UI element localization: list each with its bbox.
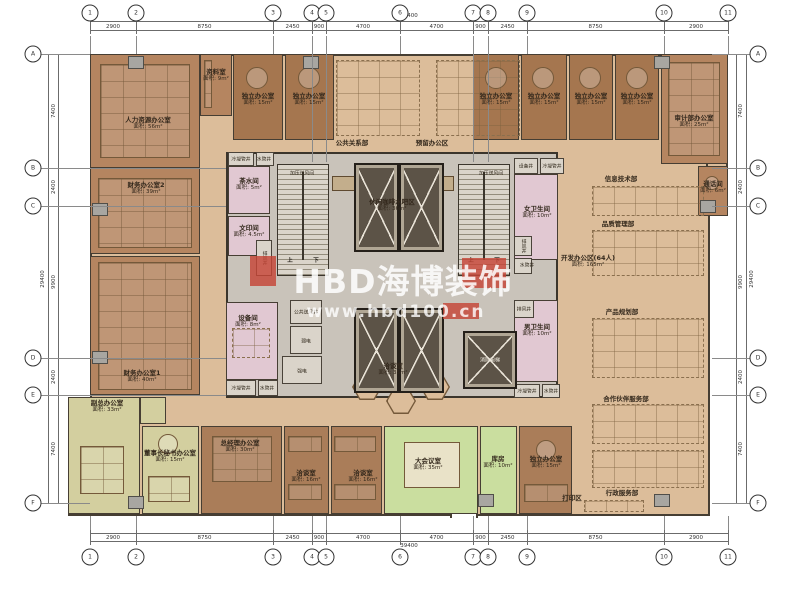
column-marker	[128, 496, 144, 509]
dim-segment-top: 4700	[356, 24, 370, 30]
grid-leader-bottom	[326, 516, 327, 530]
furniture-round	[246, 67, 268, 89]
area-label: 洽谈室面积: 35m²	[378, 362, 407, 378]
grid-bubble-top: 9	[519, 5, 536, 22]
dim-segment-top: 2450	[501, 24, 515, 30]
column-marker	[128, 56, 144, 69]
grid-bubble-bottom: 1	[82, 549, 99, 566]
grid-bubble-left: D	[25, 350, 42, 367]
stair-up-label: 上	[468, 256, 474, 264]
grid-bubble-top: 3	[265, 5, 282, 22]
furniture-solid	[212, 436, 272, 482]
dim-segment-bottom: 4700	[356, 535, 370, 541]
furniture-solid	[288, 436, 322, 452]
grid-bubble-bottom: 5	[318, 549, 335, 566]
grid-leader-top	[90, 36, 91, 54]
grid-leader-bottom	[400, 516, 401, 530]
dim-tick	[326, 529, 327, 545]
grid-bubble-right: E	[750, 387, 767, 404]
dim-segment-right: 7400	[738, 104, 744, 118]
dim-segment-left: 7400	[51, 104, 57, 118]
furniture-dashed	[336, 60, 420, 136]
area-label: 产品规划部	[606, 308, 639, 316]
dim-segment-bottom: 8750	[198, 535, 212, 541]
grid-leader-right	[712, 54, 750, 55]
grid-bubble-bottom: 10	[656, 549, 673, 566]
grid-bubble-top: 5	[318, 5, 335, 22]
stair-down-label: 下	[494, 256, 500, 264]
grid-leader-bottom	[312, 516, 313, 530]
dim-tick	[527, 529, 528, 545]
grid-leader-left	[41, 395, 226, 396]
grid-leader-left	[41, 168, 226, 169]
grid-leader-left	[41, 206, 226, 207]
shaft-label: 排风井	[517, 306, 531, 313]
furniture-round	[158, 434, 178, 454]
furniture-table	[404, 442, 460, 488]
grid-leader-right	[712, 358, 750, 359]
dim-segment-left: 9900	[51, 275, 57, 289]
dim-tick	[488, 529, 489, 545]
furniture-solid	[668, 62, 720, 156]
dim-segment-top: 2900	[689, 24, 703, 30]
shaft-label: 设备井	[519, 163, 533, 170]
dim-tick	[728, 529, 729, 545]
grid-bubble-top: 2	[128, 5, 145, 22]
dim-line-right-overall	[746, 54, 747, 503]
grid-bubble-right: D	[750, 350, 767, 367]
grid-bubble-left: F	[25, 495, 42, 512]
furniture-dashed	[592, 318, 704, 378]
dim-segment-bottom: 2450	[501, 535, 515, 541]
shaft-label: 排风井	[520, 239, 527, 253]
shaft-label: 水管井	[257, 156, 271, 163]
area-label: 预留办公区	[416, 139, 449, 147]
grid-bubble-left: C	[25, 198, 42, 215]
dim-tick	[664, 529, 665, 545]
furniture-solid	[80, 446, 124, 494]
grid-leader-bottom	[273, 516, 274, 530]
grid-bubble-left: B	[25, 160, 42, 177]
elevator-shaft	[399, 308, 444, 393]
dim-overall-right: 29400	[749, 270, 755, 288]
dim-line-top-segments	[90, 30, 728, 31]
room	[140, 397, 166, 424]
furniture-solid	[98, 262, 192, 390]
area-label: 品质管理部	[602, 220, 635, 228]
furniture-solid	[334, 484, 376, 500]
stair-down-label: 下	[313, 256, 319, 264]
dim-line-top-overall	[90, 21, 728, 22]
grid-bubble-bottom: 8	[480, 549, 497, 566]
furniture-round	[579, 67, 601, 89]
dim-segment-bottom: 900	[475, 535, 486, 541]
column-marker	[700, 200, 716, 213]
area-label: 合作伙伴服务部	[603, 395, 649, 403]
dim-segment-bottom: 4700	[430, 535, 444, 541]
dim-line-left-segments	[58, 54, 59, 503]
dim-line-right-segments	[736, 54, 737, 503]
area-label: 信息技术部	[605, 175, 638, 183]
grid-leader-bottom	[473, 516, 474, 530]
dim-segment-left: 2400	[51, 370, 57, 384]
grid-leader-bottom	[664, 516, 665, 530]
stair-rail	[302, 172, 304, 260]
area-label: 行政服务部	[606, 489, 639, 497]
grid-leader-top	[273, 36, 274, 54]
shaft-label: 加压送风间	[290, 170, 314, 177]
grid-leader-top	[473, 36, 474, 162]
column-marker	[654, 56, 670, 69]
column-marker	[654, 494, 670, 507]
grid-leader-right	[712, 206, 750, 207]
grid-bubble-top: 8	[480, 5, 497, 22]
grid-leader-bottom	[488, 516, 489, 530]
furniture-dashed	[584, 500, 644, 512]
shaft-label: 冷凝管井	[542, 163, 561, 170]
shaft-label: 水管井	[520, 262, 534, 269]
dim-line-left-overall	[48, 54, 49, 503]
furniture-dashed	[436, 60, 520, 136]
furniture-solid	[204, 60, 212, 108]
dim-tick	[136, 529, 137, 545]
dim-segment-bottom: 2450	[286, 535, 300, 541]
elevator-shaft	[354, 308, 399, 393]
grid-bubble-right: A	[750, 46, 767, 63]
dim-line-bottom-segments	[90, 533, 728, 534]
shaft-label: 强电	[297, 368, 307, 375]
dim-segment-right: 2400	[738, 180, 744, 194]
furniture-dashed	[592, 404, 704, 444]
shaft-label: 消防电梯	[480, 357, 500, 364]
dim-segment-top: 4700	[430, 24, 444, 30]
room	[228, 166, 270, 214]
grid-bubble-bottom: 11	[720, 549, 737, 566]
shaft-label: 加压送风间	[479, 170, 503, 177]
grid-bubble-right: F	[750, 495, 767, 512]
dim-segment-bottom: 8750	[589, 535, 603, 541]
dim-segment-top: 8750	[198, 24, 212, 30]
dim-line-bottom-overall	[90, 541, 728, 542]
grid-bubble-bottom: 2	[128, 549, 145, 566]
grid-leader-top	[664, 36, 665, 54]
dim-segment-bottom: 900	[314, 535, 325, 541]
dim-segment-right: 9900	[738, 275, 744, 289]
floor-plan-canvas: 上下上下394002900875024509004700470090024508…	[0, 0, 800, 592]
furniture-solid	[288, 484, 322, 500]
furniture-solid	[334, 436, 376, 452]
furniture-dashed	[592, 186, 704, 216]
column-marker	[478, 494, 494, 507]
grid-bubble-left: E	[25, 387, 42, 404]
grid-leader-left	[41, 503, 90, 504]
dim-segment-bottom: 2900	[689, 535, 703, 541]
furniture-solid	[100, 64, 190, 158]
furniture-dashed	[232, 328, 270, 358]
dim-segment-top: 900	[314, 24, 325, 30]
dim-segment-top: 8750	[589, 24, 603, 30]
grid-leader-top	[312, 36, 313, 162]
grid-leader-bottom	[90, 516, 91, 530]
shaft-label: 冷凝管井	[231, 156, 250, 163]
area-label: 打印区	[562, 494, 582, 502]
furniture-solid	[148, 476, 190, 502]
dim-tick	[90, 529, 91, 545]
furniture-round	[532, 67, 554, 89]
grid-bubble-top: 10	[656, 5, 673, 22]
dim-overall-left: 29400	[40, 270, 46, 288]
dim-tick	[273, 529, 274, 545]
dim-segment-top: 2900	[106, 24, 120, 30]
dim-segment-left: 2400	[51, 180, 57, 194]
dim-tick	[473, 529, 474, 545]
grid-leader-right	[712, 503, 750, 504]
grid-leader-top	[400, 36, 401, 54]
grid-bubble-left: A	[25, 46, 42, 63]
grid-leader-top	[527, 36, 528, 54]
grid-bubble-top: 11	[720, 5, 737, 22]
grid-leader-bottom	[527, 516, 528, 530]
grid-leader-top	[488, 36, 489, 162]
grid-leader-top	[728, 36, 729, 54]
dim-segment-right: 2400	[738, 370, 744, 384]
furniture-round	[626, 67, 648, 89]
grid-leader-right	[712, 168, 750, 169]
furniture-round	[536, 440, 556, 460]
grid-bubble-bottom: 9	[519, 549, 536, 566]
dim-segment-top: 900	[475, 24, 486, 30]
grid-leader-bottom	[136, 516, 137, 530]
grid-bubble-top: 6	[392, 5, 409, 22]
grid-bubble-right: C	[750, 198, 767, 215]
dim-tick	[312, 529, 313, 545]
area-label: 公共关系部	[336, 139, 369, 147]
furniture-round	[705, 176, 719, 190]
shaft-label: 水管井	[260, 385, 274, 392]
area-label: 开发办公区(64人)面积: 165m²	[561, 254, 615, 270]
shaft-label: 排风井	[261, 251, 268, 265]
shaft-label: 水管井	[544, 388, 558, 395]
shaft-label: 冷凝管井	[517, 388, 536, 395]
dim-segment-top: 2450	[286, 24, 300, 30]
dim-segment-bottom: 2900	[106, 535, 120, 541]
area-label: 休闲咖啡水吧区面积: 36m²	[369, 198, 415, 214]
stair-rail	[483, 172, 485, 260]
grid-bubble-right: B	[750, 160, 767, 177]
dim-segment-right: 7400	[738, 442, 744, 456]
grid-bubble-bottom: 6	[392, 549, 409, 566]
grid-leader-right	[712, 395, 750, 396]
shaft-label: 冷凝管井	[231, 385, 250, 392]
dim-segment-left: 7400	[51, 442, 57, 456]
grid-bubble-bottom: 3	[265, 549, 282, 566]
shaft-label: 弱电	[301, 338, 311, 345]
grid-leader-left	[41, 358, 226, 359]
grid-leader-bottom	[728, 516, 729, 530]
stair-up-label: 上	[287, 256, 293, 264]
grid-leader-left	[41, 54, 90, 55]
grid-leader-top	[326, 36, 327, 162]
shaft-label: 公共送风井	[294, 309, 318, 316]
furniture-round	[298, 67, 320, 89]
grid-bubble-top: 1	[82, 5, 99, 22]
grid-leader-top	[136, 36, 137, 54]
furniture-dashed	[592, 450, 704, 488]
furniture-solid	[98, 178, 192, 248]
